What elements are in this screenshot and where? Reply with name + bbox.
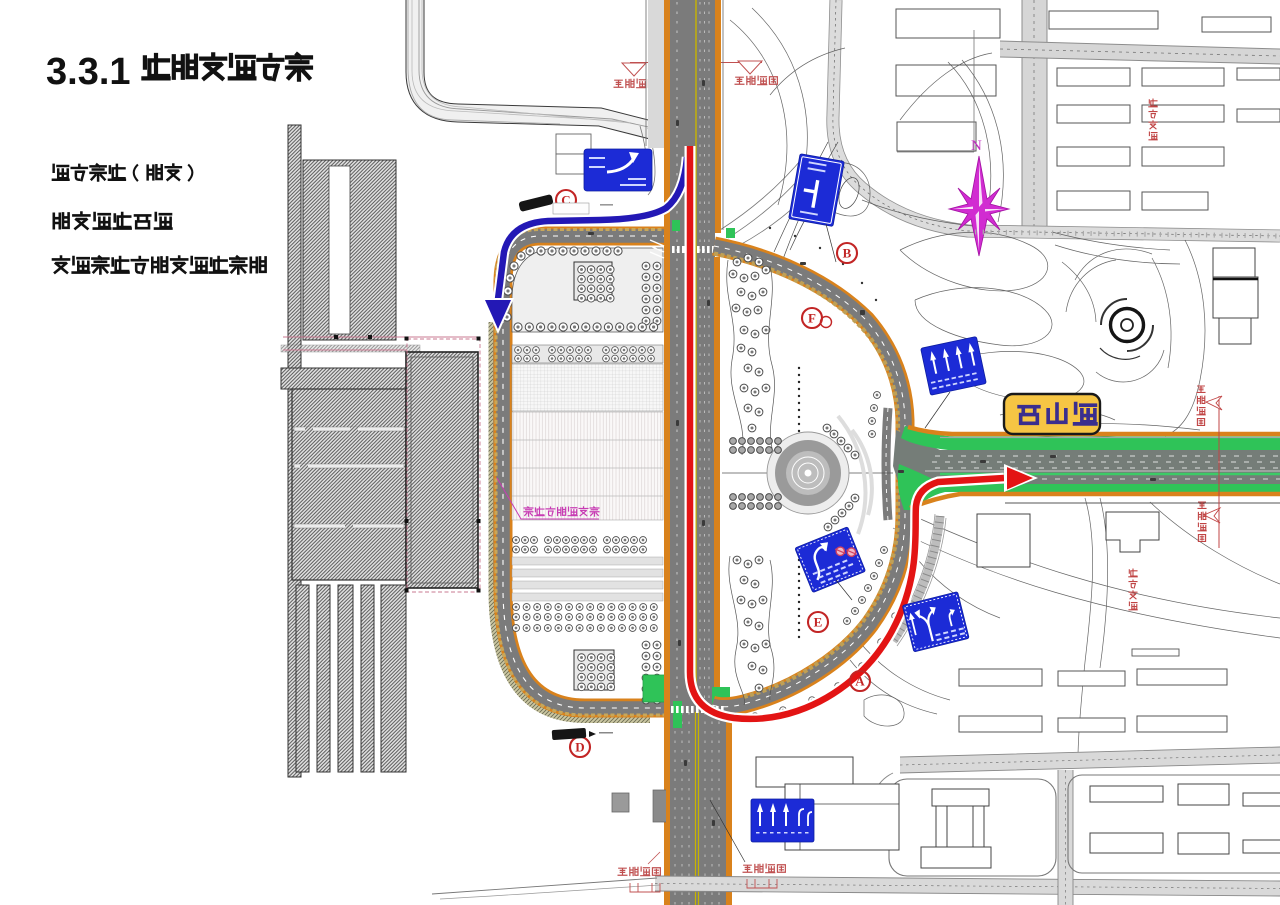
svg-text:E: E <box>814 615 823 630</box>
svg-text:3.3.1: 3.3.1 <box>46 51 131 93</box>
svg-text:F: F <box>808 311 816 326</box>
svg-text:B: B <box>843 246 852 261</box>
svg-text:D: D <box>575 740 584 755</box>
svg-text:N: N <box>971 138 982 154</box>
svg-text:A: A <box>855 674 865 689</box>
